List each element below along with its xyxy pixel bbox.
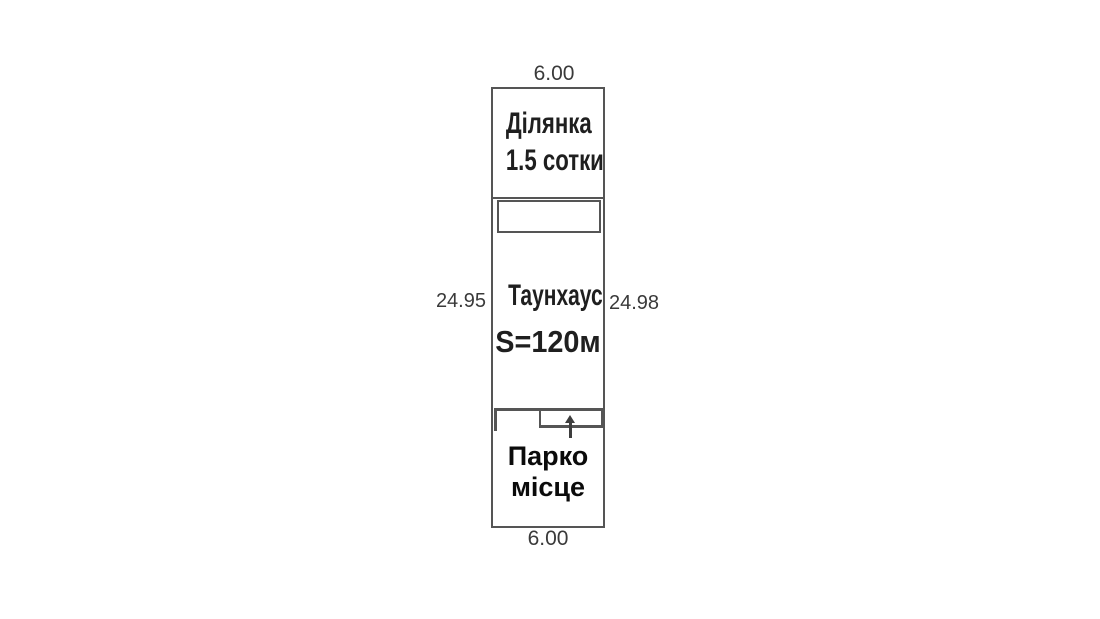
house-name-label: Таунхаус <box>508 280 588 312</box>
entry-arrow-stem <box>569 420 572 438</box>
house-area-label: S=120м <box>495 325 601 358</box>
dimension-right-length: 24.98 <box>609 292 675 315</box>
plot-house-divider-line <box>491 197 605 199</box>
parking-label: Парко місце <box>491 441 605 503</box>
house-front-rect <box>497 200 601 233</box>
parking-label-line1: Парко <box>491 441 605 472</box>
plot-area-label-line1: Ділянка <box>506 105 590 142</box>
dimension-left-length: 24.95 <box>424 290 486 313</box>
dimension-bottom-width: 6.00 <box>491 527 605 551</box>
plot-area-label: Ділянка 1.5 сотки <box>506 105 590 179</box>
parking-label-line2: місце <box>491 472 605 503</box>
dimension-top-width: 6.00 <box>497 62 611 86</box>
plot-plan-canvas: 6.00 24.95 24.98 6.00 Ділянка 1.5 сотки … <box>0 0 1100 619</box>
plot-area-label-line2: 1.5 сотки <box>506 142 590 179</box>
rear-wall-stub <box>494 408 497 431</box>
